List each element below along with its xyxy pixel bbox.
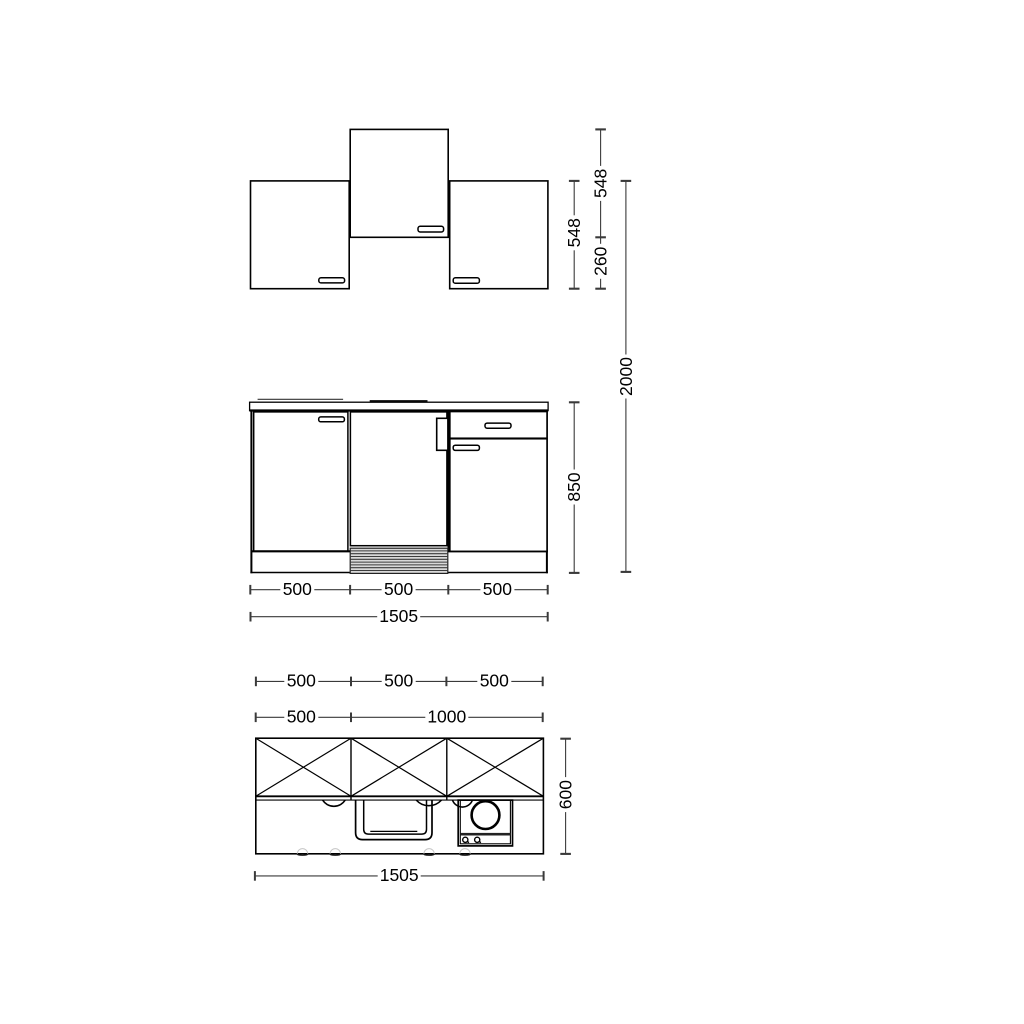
svg-text:500: 500: [483, 579, 512, 599]
svg-text:548: 548: [564, 218, 584, 247]
svg-text:600: 600: [556, 780, 576, 809]
svg-text:500: 500: [283, 579, 312, 599]
svg-text:1505: 1505: [379, 606, 418, 626]
svg-text:500: 500: [287, 671, 316, 691]
svg-text:2000: 2000: [616, 357, 636, 396]
svg-text:500: 500: [287, 707, 316, 727]
svg-text:548: 548: [591, 169, 611, 198]
svg-text:500: 500: [384, 579, 413, 599]
svg-text:1505: 1505: [380, 865, 419, 885]
svg-text:850: 850: [564, 472, 584, 501]
svg-text:260: 260: [591, 246, 611, 275]
svg-text:1000: 1000: [427, 707, 466, 727]
svg-text:500: 500: [384, 671, 413, 691]
svg-text:500: 500: [480, 671, 509, 691]
